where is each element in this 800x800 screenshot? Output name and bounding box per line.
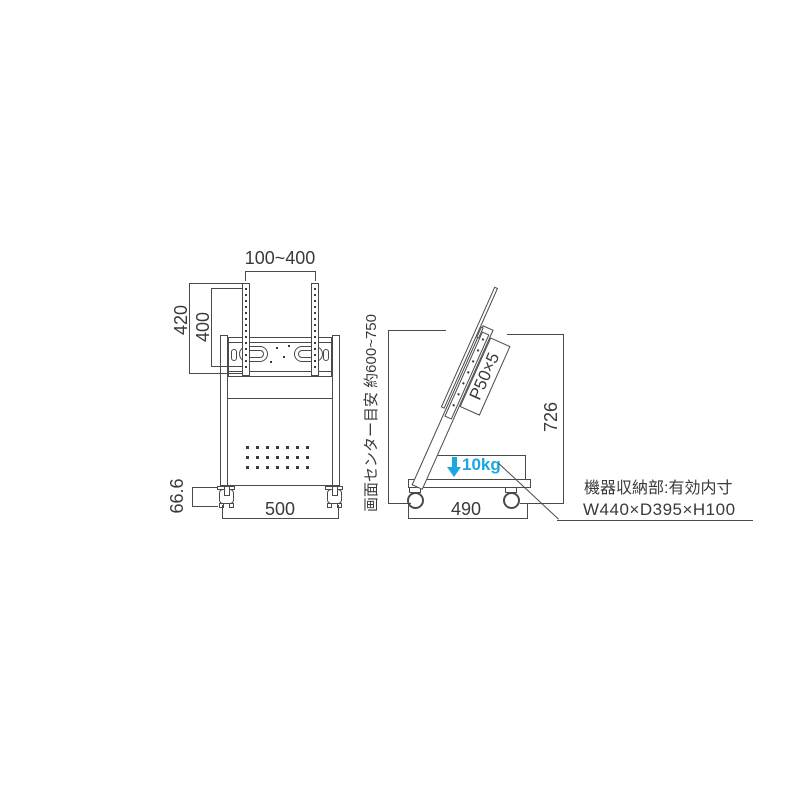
- hole-dot: [246, 456, 249, 459]
- hole-dot: [306, 446, 309, 449]
- mount-bar-end-slot-right: [323, 349, 329, 361]
- hole-dot: [296, 466, 299, 469]
- hole-dot: [314, 294, 316, 296]
- hole-dot: [245, 294, 247, 296]
- dim-ext: [388, 330, 446, 331]
- annotation-line1: 機器収納部:有効内寸: [584, 480, 732, 498]
- front-left-post: [220, 335, 228, 486]
- hole-dot: [314, 330, 316, 332]
- hole-dot: [245, 288, 247, 290]
- caster-wheel: [503, 492, 520, 509]
- hole-dot: [256, 446, 259, 449]
- hole-dot: [245, 336, 247, 338]
- dim-ext: [527, 503, 528, 519]
- dim-ext: [507, 334, 564, 335]
- hole-dot: [266, 466, 269, 469]
- hole-dot: [245, 306, 247, 308]
- hole-dot: [314, 288, 316, 290]
- leader-underline: [557, 520, 753, 521]
- hole-dot: [245, 360, 247, 362]
- arrow-head: [447, 467, 461, 477]
- dim-label-500: 500: [250, 500, 310, 518]
- dim-label-screen-center: 画面センター目安 約600~750: [363, 288, 381, 538]
- front-right-post: [332, 335, 340, 486]
- dim-label-400: 400: [194, 297, 212, 357]
- hole-dot: [314, 366, 316, 368]
- hole-dot: [245, 312, 247, 314]
- dim-ext: [245, 271, 246, 281]
- dim-label-490: 490: [436, 500, 496, 518]
- mount-bar-hole: [283, 356, 285, 358]
- mount-bar-hole: [276, 347, 278, 349]
- dim-line-mount-width: [245, 271, 316, 272]
- hole-dot: [306, 466, 309, 469]
- dim-line-726: [563, 334, 564, 503]
- dim-ext: [315, 271, 316, 281]
- dim-ext: [189, 373, 243, 374]
- hole-dot: [266, 446, 269, 449]
- hole-dot: [276, 456, 279, 459]
- hole-dot: [245, 330, 247, 332]
- hole-dot: [245, 366, 247, 368]
- dim-label-726: 726: [542, 377, 560, 457]
- dim-ext: [192, 506, 218, 507]
- dim-line-666: [192, 487, 193, 507]
- hole-dot: [245, 354, 247, 356]
- hole-dot: [246, 466, 249, 469]
- hole-dot: [314, 318, 316, 320]
- hole-dot: [286, 446, 289, 449]
- hole-dot: [245, 318, 247, 320]
- hole-dot: [286, 466, 289, 469]
- hole-dot: [256, 466, 259, 469]
- hole-dot: [314, 336, 316, 338]
- dim-label-mount-width: 100~400: [230, 249, 330, 267]
- dim-label-666: 66.6: [168, 466, 186, 526]
- caster-wheel: [407, 492, 424, 509]
- caster-foot: [327, 503, 332, 508]
- hole-dot: [314, 348, 316, 350]
- hole-dot: [266, 456, 269, 459]
- dim-ext: [211, 366, 243, 367]
- hole-dot: [306, 456, 309, 459]
- hole-dot: [314, 300, 316, 302]
- hole-dot: [245, 324, 247, 326]
- dim-ext: [222, 505, 223, 519]
- hole-dot: [296, 446, 299, 449]
- hole-dot: [314, 354, 316, 356]
- hole-dot: [314, 324, 316, 326]
- cabinet-bottom-line: [220, 485, 340, 486]
- dim-ext: [211, 288, 243, 289]
- hole-dot: [314, 306, 316, 308]
- annotation-line2: W440×D395×H100: [583, 501, 736, 519]
- hole-dot: [246, 446, 249, 449]
- hole-dot: [276, 466, 279, 469]
- cabinet-divider-line: [228, 398, 332, 399]
- hole-dot: [245, 300, 247, 302]
- mount-bar-hole: [288, 345, 290, 347]
- dim-line-screen-center: [388, 330, 389, 503]
- caster-slot: [224, 486, 230, 496]
- hole-dot: [296, 456, 299, 459]
- dim-ext: [338, 505, 339, 519]
- dim-ext: [189, 283, 243, 284]
- hole-dot: [286, 456, 289, 459]
- dim-ext: [192, 487, 218, 488]
- hole-dot: [245, 342, 247, 344]
- caster-slot: [332, 486, 338, 496]
- hole-dot: [314, 312, 316, 314]
- hole-dot: [276, 446, 279, 449]
- mount-bar-hole: [270, 361, 272, 363]
- diagram-canvas: 100~400 420 400 66.6 500: [0, 0, 800, 800]
- hole-dot: [256, 456, 259, 459]
- hole-dot: [245, 348, 247, 350]
- dim-label-420: 420: [172, 290, 190, 350]
- shelf-load-label: 10kg: [462, 456, 501, 474]
- mount-bar-end-slot-left: [231, 349, 237, 361]
- hole-dot: [314, 360, 316, 362]
- hole-dot: [314, 342, 316, 344]
- caster-foot: [229, 503, 234, 508]
- dim-ext: [408, 503, 409, 519]
